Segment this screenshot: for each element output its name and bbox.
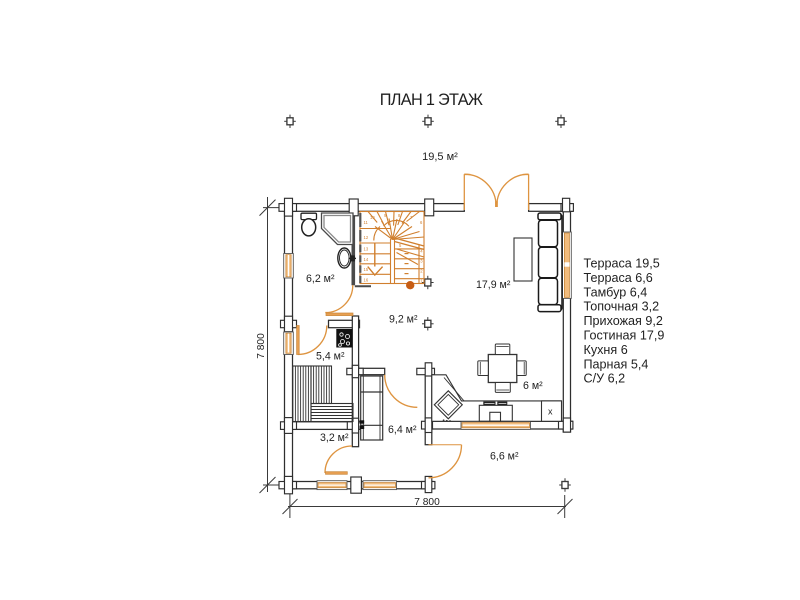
svg-text:15: 15 [364, 267, 369, 272]
svg-text:6,6 м²: 6,6 м² [490, 451, 519, 463]
svg-text:7 800: 7 800 [414, 497, 440, 508]
svg-text:Топочная 3,2: Топочная 3,2 [584, 300, 660, 314]
svg-text:5,4 м²: 5,4 м² [316, 351, 345, 363]
svg-text:16: 16 [364, 277, 369, 282]
svg-text:Гостиная 17,9: Гостиная 17,9 [584, 329, 665, 343]
svg-text:17,9 м²: 17,9 м² [476, 279, 511, 291]
svg-text:Терраса 6,6: Терраса 6,6 [584, 271, 653, 285]
svg-text:Кухня 6: Кухня 6 [584, 343, 628, 357]
svg-text:Терраса 19,5: Терраса 19,5 [584, 257, 660, 271]
svg-text:6,4 м²: 6,4 м² [388, 424, 417, 436]
svg-text:9,2 м²: 9,2 м² [389, 314, 418, 326]
svg-text:6 м²: 6 м² [523, 380, 543, 392]
svg-text:11: 11 [364, 220, 369, 225]
svg-text:ПЛАН 1 ЭТАЖ: ПЛАН 1 ЭТАЖ [380, 91, 483, 109]
svg-text:Тамбур 6,4: Тамбур 6,4 [584, 285, 648, 299]
svg-text:10: 10 [370, 215, 375, 220]
svg-text:7 800: 7 800 [256, 333, 267, 359]
svg-text:Прихожая 9,2: Прихожая 9,2 [584, 314, 663, 328]
svg-text:3,2 м²: 3,2 м² [320, 432, 349, 444]
svg-text:19,5 м²: 19,5 м² [422, 151, 458, 163]
svg-text:12: 12 [364, 235, 369, 240]
svg-text:С/У 6,2: С/У 6,2 [584, 372, 626, 386]
svg-text:13: 13 [364, 247, 369, 252]
svg-text:x: x [548, 407, 553, 417]
svg-text:Парная 5,4: Парная 5,4 [584, 357, 649, 371]
svg-text:14: 14 [364, 257, 369, 262]
svg-text:6,2 м²: 6,2 м² [306, 273, 335, 285]
